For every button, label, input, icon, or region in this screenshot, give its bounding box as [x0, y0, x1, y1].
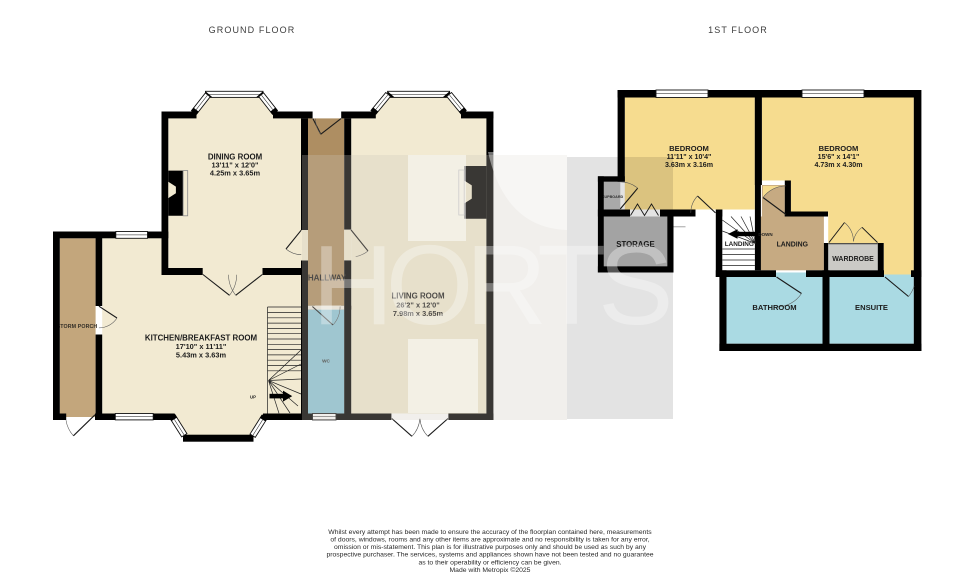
svg-text:omission or mis-statement. Thi: omission or mis-statement. This plan is … [334, 544, 647, 551]
svg-text:4.73m x 4.30m: 4.73m x 4.30m [814, 161, 862, 169]
svg-text:BEDROOM: BEDROOM [819, 144, 859, 153]
svg-text:15'6" x 14'1": 15'6" x 14'1" [818, 153, 860, 161]
svg-text:11'11" x 10'4": 11'11" x 10'4" [667, 153, 712, 161]
svg-text:LANDING: LANDING [725, 241, 754, 248]
svg-text:prospective purchaser. The ser: prospective purchaser. The services, sys… [326, 552, 653, 559]
svg-text:HORTS: HORTS [312, 222, 669, 348]
svg-text:BEDROOM: BEDROOM [669, 144, 709, 153]
svg-text:LANDING: LANDING [777, 242, 808, 249]
svg-text:WARDROBE: WARDROBE [832, 256, 874, 263]
svg-text:GROUND FLOOR: GROUND FLOOR [209, 25, 296, 35]
svg-text:as to their operability or eff: as to their operability or efficiency ca… [418, 559, 561, 566]
svg-text:of doors, windows, rooms and a: of doors, windows, rooms and any other i… [330, 537, 649, 544]
svg-text:1ST FLOOR: 1ST FLOOR [708, 25, 768, 35]
svg-text:DOWN: DOWN [758, 232, 772, 237]
svg-text:ENSUITE: ENSUITE [855, 303, 888, 312]
svg-text:STORM PORCH: STORM PORCH [57, 324, 98, 330]
svg-text:Whilst every attempt has been: Whilst every attempt has been made to en… [328, 529, 652, 536]
svg-text:4.25m x 3.65m: 4.25m x 3.65m [210, 169, 261, 178]
svg-text:UP: UP [250, 395, 256, 400]
svg-text:Made with Metropix ©2025: Made with Metropix ©2025 [450, 566, 531, 574]
svg-text:BATHROOM: BATHROOM [752, 303, 796, 312]
svg-text:5.43m x 3.63m: 5.43m x 3.63m [176, 351, 227, 360]
